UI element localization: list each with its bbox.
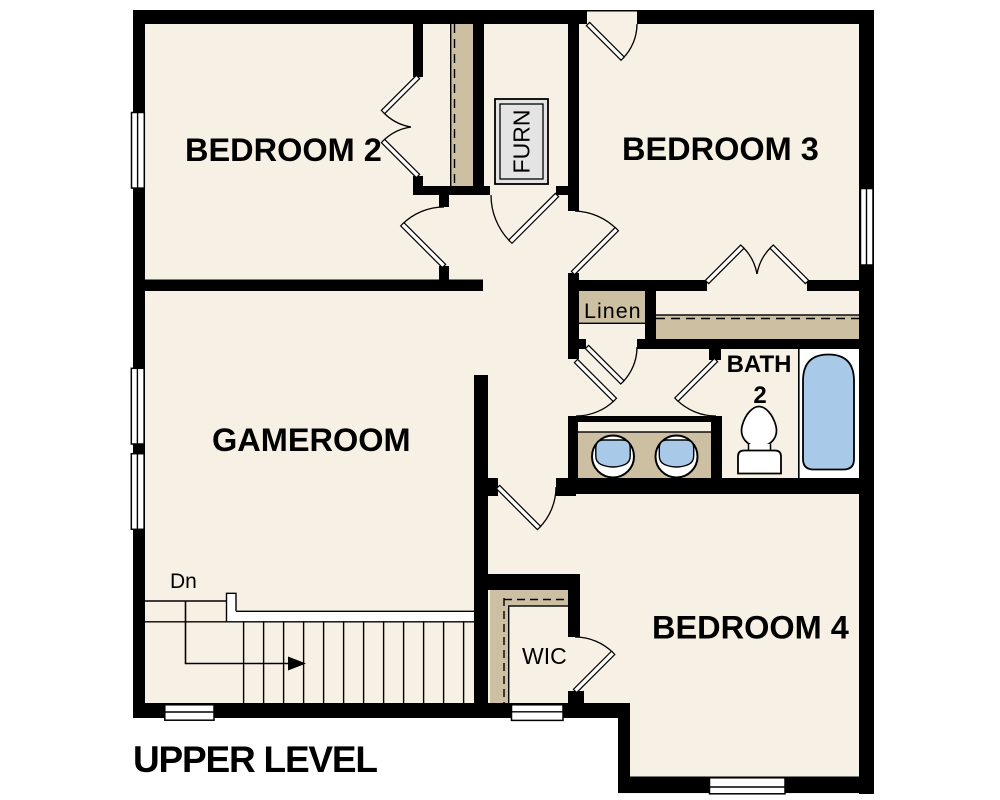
svg-text:BEDROOM 2: BEDROOM 2	[185, 132, 382, 168]
svg-text:GAMEROOM: GAMEROOM	[212, 422, 411, 458]
svg-text:BEDROOM 3: BEDROOM 3	[622, 131, 819, 167]
svg-text:BEDROOM 4: BEDROOM 4	[652, 610, 849, 646]
svg-text:WIC: WIC	[522, 643, 567, 669]
svg-text:UPPER LEVEL: UPPER LEVEL	[133, 739, 377, 780]
svg-text:BATH: BATH	[727, 351, 792, 378]
svg-text:Dn: Dn	[170, 570, 197, 593]
svg-text:2: 2	[753, 382, 766, 409]
svg-text:FURN: FURN	[509, 110, 535, 174]
svg-text:Linen: Linen	[584, 299, 642, 323]
